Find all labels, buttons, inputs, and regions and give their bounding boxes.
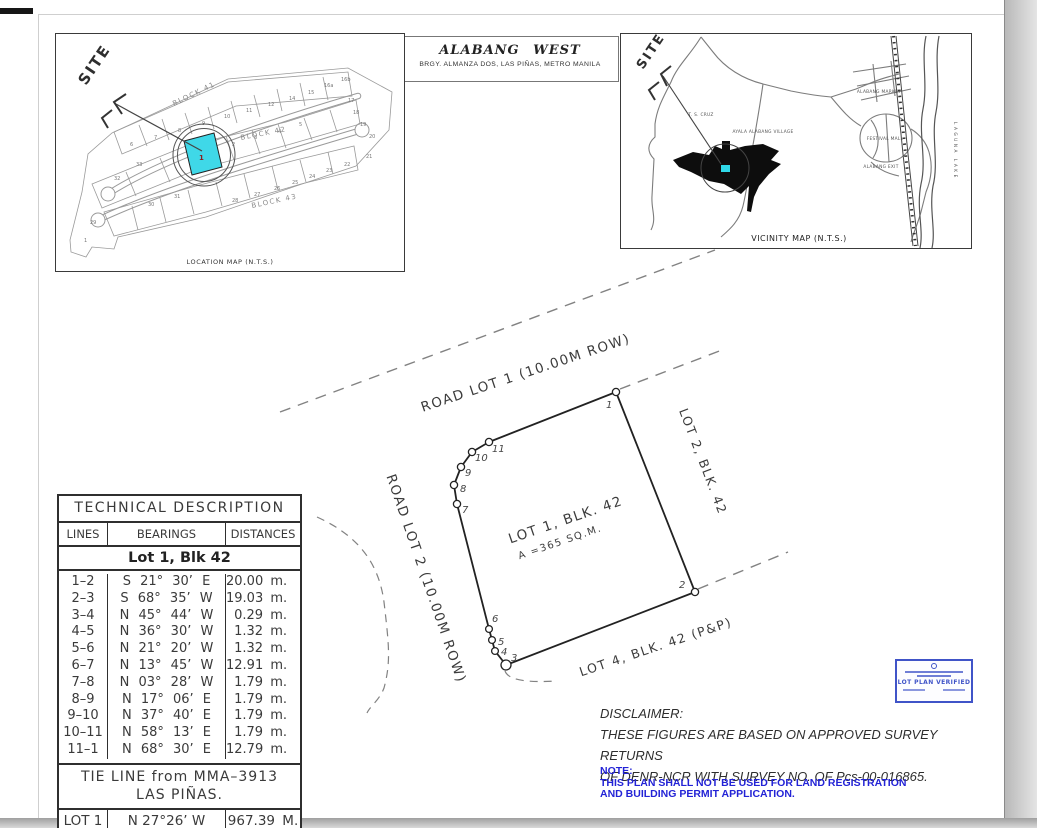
table-cell-dist: 12.91 m. bbox=[225, 658, 300, 675]
table-cell-bearing: S 68° 35’ W bbox=[107, 591, 225, 608]
site-highlight bbox=[721, 165, 730, 172]
site-arrowhead-icon bbox=[114, 94, 126, 114]
lot-number: 29 bbox=[90, 220, 96, 226]
tie-bearing: N 27°26’ W bbox=[107, 810, 225, 828]
note-line2: AND BUILDING PERMIT APPLICATION. bbox=[600, 789, 930, 801]
lot-number: 14 bbox=[289, 96, 295, 102]
lot-number: 7 bbox=[154, 135, 157, 141]
lot-number: 22 bbox=[344, 162, 350, 168]
lot-number: 11 bbox=[246, 108, 252, 114]
tie-line-2: LAS PIÑAS. bbox=[59, 786, 300, 804]
lot-number: 30 bbox=[148, 202, 154, 208]
lot-number: 10 bbox=[224, 114, 230, 120]
table-row: 3–4N 45° 44’ W0.29 m. bbox=[59, 608, 300, 625]
table-row: 8–9N 17° 06’ E1.79 m. bbox=[59, 692, 300, 709]
cul-de-sac bbox=[101, 187, 115, 201]
table-cell-bearing: N 58° 13’ E bbox=[107, 725, 225, 742]
festival-mall-label: FESTIVAL MALL bbox=[867, 136, 904, 142]
lot-number: 32 bbox=[114, 176, 120, 182]
road-lot1-label: ROAD LOT 1 (10.00M ROW) bbox=[419, 331, 632, 416]
vicinity-map: SITE T. S. CRUZ AYALA ALABANG VILLAGE AL… bbox=[620, 33, 972, 249]
corner-point bbox=[453, 500, 460, 507]
table-cell-dist: 1.32 m. bbox=[225, 624, 300, 641]
table-column-headers: LINES BEARINGS DISTANCES bbox=[59, 523, 300, 547]
lot-number: 25 bbox=[292, 180, 298, 186]
site-arrowhead-icon bbox=[102, 110, 112, 128]
table-cell-dist: 1.79 m. bbox=[225, 708, 300, 725]
tie-line-row: LOT 1 N 27°26’ W 967.39 M. bbox=[59, 810, 300, 828]
lot-number: 19 bbox=[360, 122, 366, 128]
table-cell-line: 11–1 bbox=[59, 742, 107, 759]
page-corner-mark bbox=[0, 8, 33, 14]
boundary-arc bbox=[505, 671, 556, 682]
lot-number: 16a bbox=[324, 83, 333, 89]
scan-right-margin bbox=[1004, 0, 1037, 828]
tie-line-note: TIE LINE from MMA–3913 LAS PIÑAS. bbox=[59, 765, 300, 810]
table-cell-dist: 1.32 m. bbox=[225, 641, 300, 658]
lot-number: 33 bbox=[136, 162, 142, 168]
note-block: NOTE: THIS PLAN SHALL NOT BE USED FOR LA… bbox=[600, 766, 930, 801]
lot2-label: LOT 2, BLK. 42 bbox=[676, 406, 730, 516]
lot-number: 16b bbox=[341, 77, 351, 83]
laguna-lake-label: LAGUNA LAKE bbox=[952, 122, 958, 180]
table-cell-line: 5–6 bbox=[59, 641, 107, 658]
site-label: SITE bbox=[74, 41, 114, 88]
table-cell-line: 3–4 bbox=[59, 608, 107, 625]
site-arrowhead-icon bbox=[649, 82, 659, 100]
table-cell-dist: 1.79 m. bbox=[225, 725, 300, 742]
lot-number: 24 bbox=[309, 174, 315, 180]
table-cell-line: 8–9 bbox=[59, 692, 107, 709]
corner-number: 7 bbox=[462, 505, 469, 516]
table-row: 11–1N 68° 30’ E12.79 m. bbox=[59, 742, 300, 759]
survey-plan-drawing: 1 2 3 4 5 6 7 8 9 10 11 ROAD LOT 1 (10.0… bbox=[250, 230, 810, 730]
technical-description-table: TECHNICAL DESCRIPTION LINES BEARINGS DIS… bbox=[57, 494, 302, 828]
tie-lot: LOT 1 bbox=[59, 810, 107, 828]
table-row: 1–2S 21° 30’ E20.00 m. bbox=[59, 574, 300, 591]
table-cell-dist: 19.03 m. bbox=[225, 591, 300, 608]
table-row: 5–6N 21° 20’ W1.32 m. bbox=[59, 641, 300, 658]
corner-number: 8 bbox=[460, 484, 466, 495]
lot-number: 1 bbox=[84, 238, 87, 244]
stamp-seal-icon bbox=[931, 663, 937, 669]
table-cell-bearing: S 21° 30’ E bbox=[107, 574, 225, 591]
lot1-boundary bbox=[454, 392, 695, 665]
alabang-exit-label: ALABANG EXIT bbox=[863, 164, 898, 170]
table-cell-line: 9–10 bbox=[59, 708, 107, 725]
corner-point bbox=[457, 463, 464, 470]
corner-point bbox=[691, 588, 698, 595]
corner-number: 9 bbox=[465, 468, 471, 479]
table-cell-line: 6–7 bbox=[59, 658, 107, 675]
tie-distance: 967.39 M. bbox=[225, 810, 300, 828]
lot-number: 23 bbox=[326, 168, 332, 174]
lot-number: 8 bbox=[178, 128, 181, 134]
corner-point bbox=[501, 660, 511, 670]
lot-number: 26 bbox=[274, 186, 280, 192]
table-cell-bearing: N 03° 28’ W bbox=[107, 675, 225, 692]
col-lines: LINES bbox=[59, 523, 107, 545]
corner-number: 3 bbox=[511, 653, 517, 664]
stamp-footer bbox=[897, 687, 971, 691]
lot-plan-document: ALABANG WEST BRGY. ALMANZA DOS, LAS PIÑA… bbox=[0, 0, 1037, 828]
table-cell-bearing: N 68° 30’ E bbox=[107, 742, 225, 759]
site-arrow-line bbox=[663, 76, 721, 164]
stamp-line bbox=[917, 675, 951, 677]
table-cell-bearing: N 13° 45’ W bbox=[107, 658, 225, 675]
stamp-text: LOT PLAN VERIFIED bbox=[897, 679, 971, 687]
site-area-blob bbox=[673, 141, 781, 212]
vicinity-map-drawing: SITE T. S. CRUZ AYALA ALABANG VILLAGE AL… bbox=[621, 34, 971, 248]
lot-number: 27 bbox=[254, 192, 260, 198]
lot-number: 6 bbox=[130, 142, 133, 148]
lot-number: 4 bbox=[278, 129, 281, 135]
lot-number: 17 bbox=[348, 98, 354, 104]
table-cell-dist: 12.79 m. bbox=[225, 742, 300, 759]
table-row: 9–10N 37° 40’ E1.79 m. bbox=[59, 708, 300, 725]
corner-point bbox=[450, 481, 457, 488]
road-lot2-far-edge bbox=[317, 517, 389, 713]
lot-number: 9 bbox=[202, 121, 205, 127]
disclaimer-line1: THESE FIGURES ARE BASED ON APPROVED SURV… bbox=[600, 724, 980, 766]
corner-number: 10 bbox=[475, 453, 488, 464]
table-cell-dist: 20.00 m. bbox=[225, 574, 300, 591]
table-cell-line: 1–2 bbox=[59, 574, 107, 591]
ts-cruz-label: T. S. CRUZ bbox=[687, 112, 713, 118]
block-41-label: BLOCK 41 bbox=[171, 80, 216, 108]
tie-line-1: TIE LINE from MMA–3913 bbox=[59, 768, 300, 786]
corner-number: 5 bbox=[498, 637, 504, 648]
lot-number: 28 bbox=[232, 198, 238, 204]
corner-number: 2 bbox=[679, 580, 685, 591]
table-row: 2–3S 68° 35’ W19.03 m. bbox=[59, 591, 300, 608]
lot-number: 20 bbox=[369, 134, 375, 140]
corner-point bbox=[492, 648, 499, 655]
page-title: ALABANG WEST bbox=[402, 43, 618, 58]
corner-point bbox=[612, 388, 619, 395]
table-cell-line: 2–3 bbox=[59, 591, 107, 608]
table-row: 7–8N 03° 28’ W1.79 m. bbox=[59, 675, 300, 692]
table-row: 10–11N 58° 13’ E1.79 m. bbox=[59, 725, 300, 742]
corner-number: 6 bbox=[492, 614, 498, 625]
table-cell-line: 10–11 bbox=[59, 725, 107, 742]
alabang-market-label: ALABANG MARKET bbox=[857, 89, 901, 95]
lot-number: 15 bbox=[308, 90, 314, 96]
lot-number: 18 bbox=[353, 110, 359, 116]
table-row: 6–7N 13° 45’ W12.91 m. bbox=[59, 658, 300, 675]
lot-number: 12 bbox=[268, 102, 274, 108]
lake-shore bbox=[932, 36, 939, 248]
table-cell-bearing: N 37° 40’ E bbox=[107, 708, 225, 725]
road bbox=[831, 97, 861, 126]
road bbox=[649, 37, 701, 230]
ayala-alabang-label: AYALA ALABANG VILLAGE bbox=[732, 129, 793, 135]
table-body: 1–2S 21° 30’ E20.00 m.2–3S 68° 35’ W19.0… bbox=[59, 571, 300, 765]
table-cell-line: 7–8 bbox=[59, 675, 107, 692]
table-title: TECHNICAL DESCRIPTION bbox=[59, 496, 300, 523]
corner-point bbox=[486, 626, 493, 633]
lot4-label: LOT 4, BLK. 42 (P&P) bbox=[577, 614, 734, 679]
lot-number: 5 bbox=[299, 122, 302, 128]
verification-stamp: LOT PLAN VERIFIED bbox=[895, 659, 973, 703]
table-cell-bearing: N 36° 30’ W bbox=[107, 624, 225, 641]
table-cell-dist: 1.79 m. bbox=[225, 675, 300, 692]
table-cell-bearing: N 21° 20’ W bbox=[107, 641, 225, 658]
col-distances: DISTANCES bbox=[225, 523, 300, 545]
col-bearings: BEARINGS bbox=[107, 523, 225, 545]
table-subtitle: Lot 1, Blk 42 bbox=[59, 547, 300, 571]
table-row: 4–5N 36° 30’ W1.32 m. bbox=[59, 624, 300, 641]
table-cell-bearing: N 17° 06’ E bbox=[107, 692, 225, 709]
lot-number: 3 bbox=[254, 135, 257, 141]
table-cell-dist: 0.29 m. bbox=[225, 608, 300, 625]
lot-strip-block43 bbox=[104, 146, 358, 236]
corner-point bbox=[489, 637, 496, 644]
corner-number: 11 bbox=[492, 444, 505, 455]
disclaimer-title: DISCLAIMER: bbox=[600, 703, 980, 724]
table-cell-bearing: N 45° 44’ W bbox=[107, 608, 225, 625]
title-block: ALABANG WEST BRGY. ALMANZA DOS, LAS PIÑA… bbox=[401, 36, 619, 82]
lot-number: 31 bbox=[174, 194, 180, 200]
note-title: NOTE: bbox=[600, 766, 930, 778]
table-cell-line: 4–5 bbox=[59, 624, 107, 641]
table-cell-dist: 1.79 m. bbox=[225, 692, 300, 709]
page-subtitle: BRGY. ALMANZA DOS, LAS PIÑAS, METRO MANI… bbox=[402, 61, 618, 68]
site-arrowhead-icon bbox=[661, 66, 671, 86]
road-edge-extension bbox=[620, 350, 722, 389]
corner-number: 4 bbox=[501, 647, 507, 658]
road bbox=[701, 37, 831, 97]
lot-number: 2 bbox=[232, 142, 235, 148]
site-lot-number: 1 bbox=[199, 154, 204, 162]
lot-number: 21 bbox=[366, 154, 372, 160]
stamp-line bbox=[905, 671, 963, 673]
site-label: SITE bbox=[634, 34, 669, 72]
boundary-extension bbox=[698, 552, 788, 589]
corner-number: 1 bbox=[606, 400, 612, 411]
